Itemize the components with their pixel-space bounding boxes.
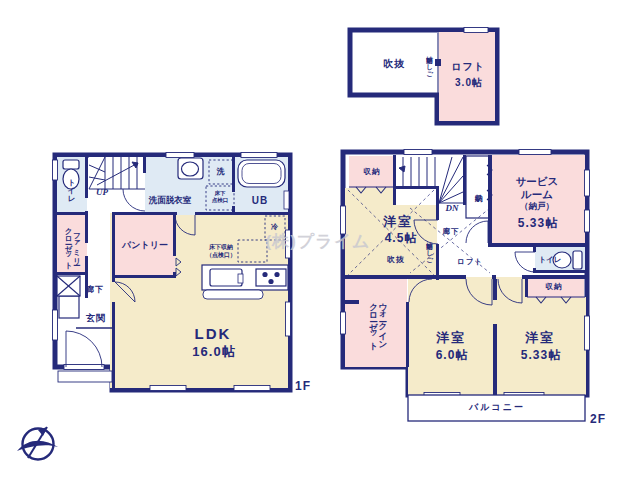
room-533-label: 洋室 <box>525 330 555 347</box>
floor-plan-page: 吹抜 可動はしご ロフト 3.0帖 トイレ UP 洗面脱衣室 洗 床下 点検口 … <box>0 0 640 480</box>
hallway-label-1f: 廊下 <box>86 285 104 295</box>
stairs-up-label: UP <box>96 187 108 199</box>
loft-label: ロフト <box>451 60 485 73</box>
room-45-label: 洋室 <box>383 214 413 231</box>
toilet-label-1f: トイレ <box>67 173 75 199</box>
washroom-label: 洗面脱衣室 <box>149 195 192 206</box>
ldk-size: 16.0帖 <box>192 344 235 361</box>
floor1-label: 1F <box>295 379 311 395</box>
entrance-porch <box>58 371 112 382</box>
underfloor-hatch-label: 床下 点検口 <box>212 190 229 204</box>
hallway-label-2f: 廊下 <box>443 227 460 237</box>
floor1-plan <box>53 153 291 391</box>
sink-icon <box>210 269 243 286</box>
balcony-label: バルコニー <box>469 402 525 414</box>
ldk-label: LDK <box>195 324 232 344</box>
family-closet-label: ファミリークローゼット <box>64 223 81 266</box>
stairs-dn-label: DN <box>446 203 459 215</box>
void-label-loft: 吹抜 <box>383 57 405 70</box>
room-533-size: 5.33帖 <box>521 348 561 364</box>
floor2-label: 2F <box>590 412 606 428</box>
loft-label-2f: ロフト <box>457 257 483 267</box>
entrance-label: 玄関 <box>86 313 106 325</box>
storage-r-label: 収納 <box>546 282 563 292</box>
shoe-cabinet <box>59 296 79 318</box>
underfloor-storage-label: 床下収納 （点検口） <box>206 244 236 260</box>
ladder-label-loft: 可動はしご <box>426 52 433 74</box>
wic-wall-stub <box>343 300 359 304</box>
service-room-label: サービス ルーム （納戸） <box>516 175 559 212</box>
unit-bath-label: UB <box>252 194 268 207</box>
ladder-mark <box>435 59 441 66</box>
storage-tl-label: 収納 <box>364 167 381 177</box>
washer-label: 洗 <box>217 167 226 177</box>
room-45-size: 4.5帖 <box>385 231 418 247</box>
walk-in-closet-label: ウォークインクローゼット <box>369 297 388 346</box>
toilet-label-2f: トイレ <box>538 255 561 265</box>
room-60-size: 6.0帖 <box>436 348 469 364</box>
compass-icon <box>17 427 58 460</box>
stove-icon <box>256 269 286 286</box>
washbasin-icon <box>178 158 203 179</box>
room-60-label: 洋室 <box>436 330 466 347</box>
ladder-label-2f: 可動はしご <box>426 238 433 260</box>
watermark: (株)プライム <box>266 230 371 253</box>
void-label-2f: 吹抜 <box>387 255 405 265</box>
storage-mid-box <box>466 156 490 218</box>
pantry-label: パントリー <box>122 240 168 252</box>
loft-size: 3.0帖 <box>455 76 483 89</box>
service-room-size: 5.33帖 <box>518 216 558 232</box>
